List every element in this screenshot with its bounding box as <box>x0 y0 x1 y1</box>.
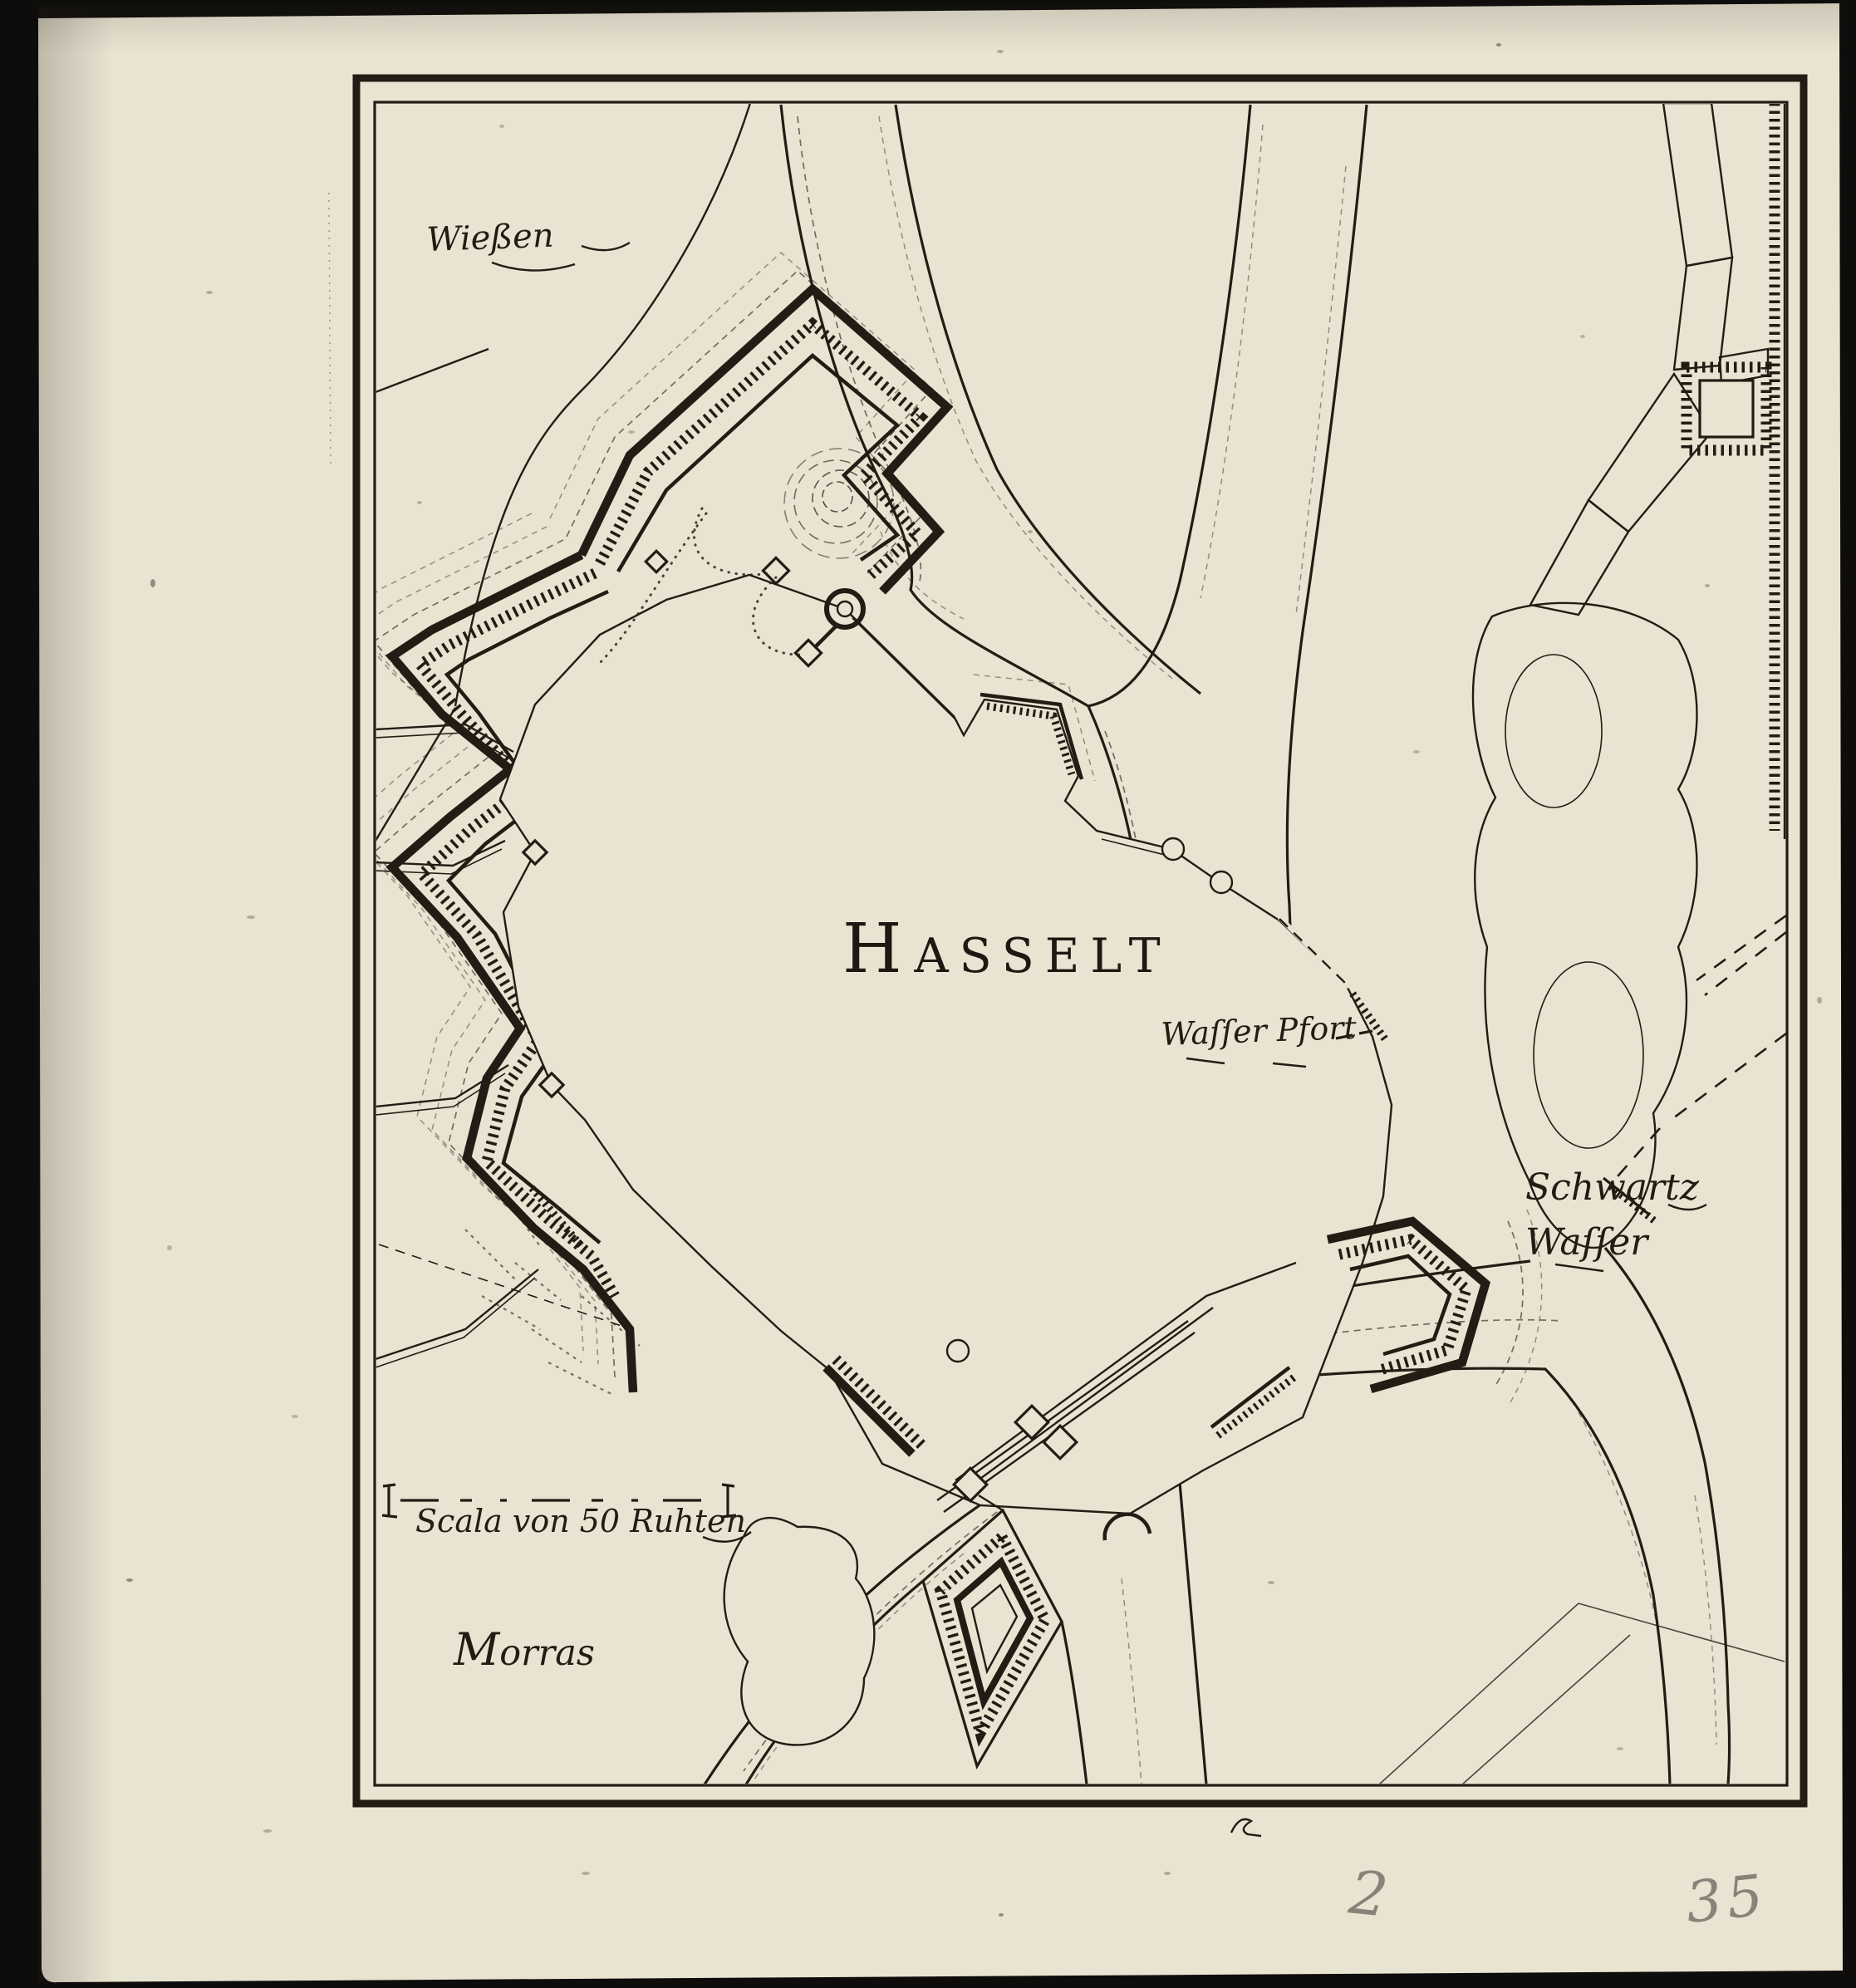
label-wasser-pfort: Waſſer Pfort <box>1161 1009 1358 1053</box>
scale-bar-label: Scala von 50 Ruhten <box>415 1503 746 1539</box>
pond <box>724 1518 875 1745</box>
paper-edge-shadow-left <box>38 8 113 1982</box>
paper-edge-shadow-top <box>38 3 1841 53</box>
label-schwartz-wasser: Waſſer <box>1525 1221 1650 1264</box>
pencil-number-right: 35 <box>1683 1863 1771 1936</box>
scanned-map-page: Wießen HASSELT Waſſer Pfort Schwartz Waſ… <box>0 0 1856 1988</box>
hasselt-fortification-map: Wießen HASSELT Waſſer Pfort Schwartz Waſ… <box>0 0 1856 1988</box>
pencil-number-left: 2 <box>1345 1857 1391 1930</box>
label-wiessen: Wießen <box>426 217 555 259</box>
label-schwartz: Schwartz <box>1525 1166 1700 1209</box>
